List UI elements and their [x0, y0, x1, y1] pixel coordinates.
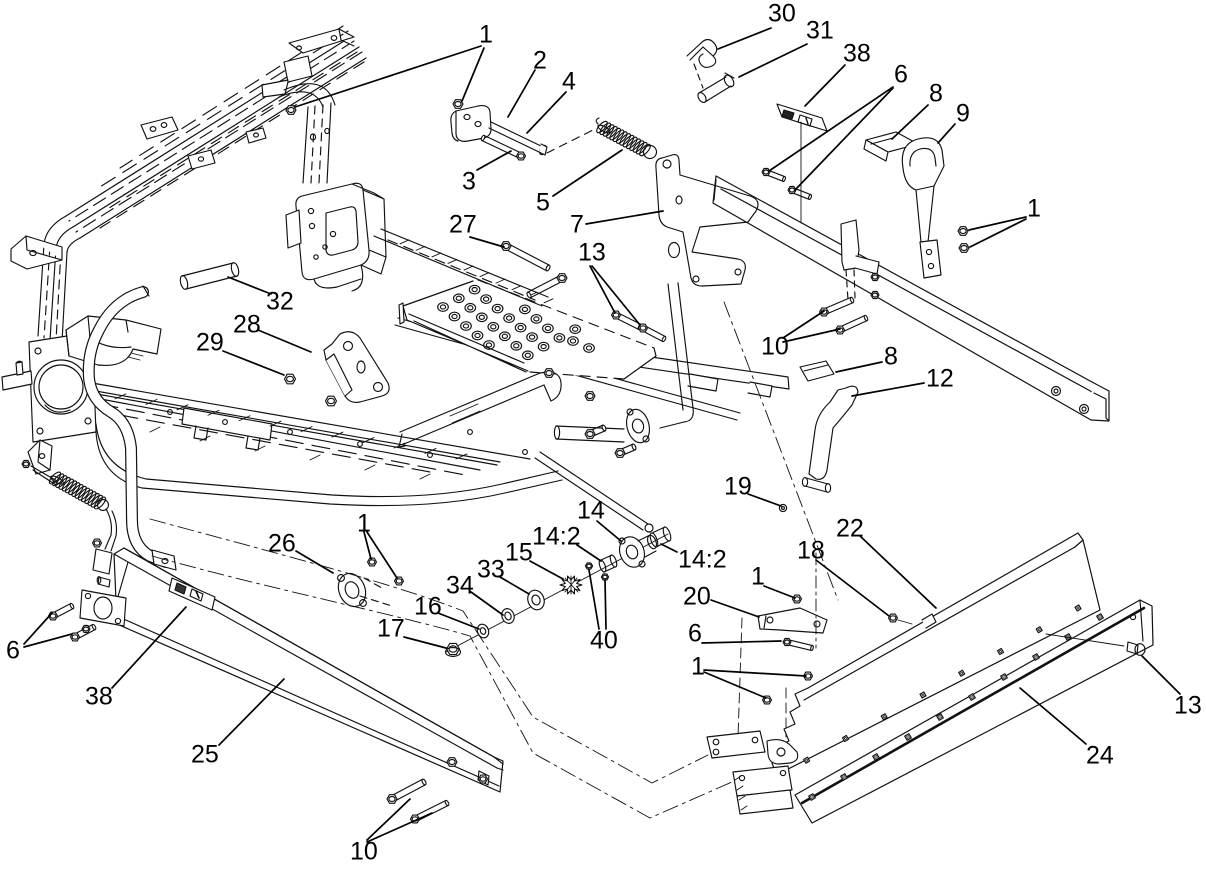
svg-text:31: 31 [806, 17, 834, 45]
svg-text:12: 12 [926, 365, 954, 393]
svg-text:24: 24 [1086, 742, 1114, 770]
svg-text:8: 8 [929, 80, 943, 108]
svg-text:4: 4 [562, 68, 576, 96]
svg-text:1: 1 [751, 563, 765, 591]
svg-text:14:2: 14:2 [678, 546, 727, 574]
svg-text:38: 38 [85, 683, 113, 711]
svg-text:7: 7 [570, 211, 584, 239]
svg-text:3: 3 [462, 168, 476, 196]
svg-text:8: 8 [884, 343, 898, 371]
svg-text:9: 9 [956, 100, 970, 128]
svg-text:10: 10 [350, 838, 378, 866]
svg-text:17: 17 [377, 615, 405, 643]
svg-text:18: 18 [797, 537, 825, 565]
svg-text:25: 25 [191, 741, 219, 769]
svg-text:1: 1 [357, 510, 371, 538]
svg-text:27: 27 [449, 211, 477, 239]
svg-text:22: 22 [836, 515, 864, 543]
svg-text:33: 33 [477, 556, 505, 584]
svg-text:6: 6 [6, 637, 20, 665]
svg-text:26: 26 [268, 530, 296, 558]
svg-text:10: 10 [761, 333, 789, 361]
svg-text:19: 19 [724, 473, 752, 501]
svg-text:32: 32 [266, 288, 294, 316]
svg-text:34: 34 [446, 572, 474, 600]
svg-text:28: 28 [233, 311, 261, 339]
svg-text:20: 20 [683, 583, 711, 611]
svg-text:30: 30 [768, 0, 796, 28]
svg-text:6: 6 [688, 620, 702, 648]
svg-text:15: 15 [505, 539, 533, 567]
svg-text:16: 16 [414, 593, 442, 621]
svg-text:5: 5 [536, 189, 550, 217]
svg-text:1: 1 [691, 653, 705, 681]
svg-text:38: 38 [843, 40, 871, 68]
svg-text:6: 6 [894, 61, 908, 89]
svg-text:40: 40 [590, 627, 618, 655]
svg-text:14:2: 14:2 [532, 523, 581, 551]
svg-text:29: 29 [196, 329, 224, 357]
svg-text:13: 13 [578, 239, 606, 267]
svg-text:13: 13 [1174, 692, 1202, 720]
svg-text:14: 14 [577, 497, 605, 525]
svg-text:1: 1 [1027, 195, 1041, 223]
svg-text:2: 2 [533, 47, 547, 75]
svg-text:1: 1 [479, 21, 493, 49]
